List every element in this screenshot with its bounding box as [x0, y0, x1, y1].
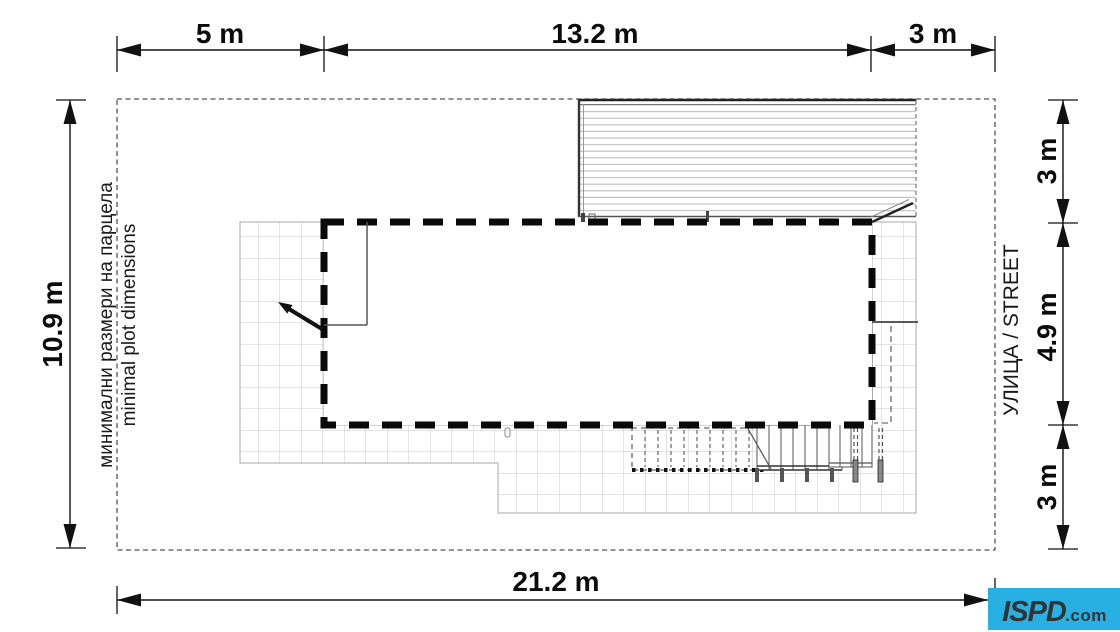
- dim-right-bottom-label: 3 m: [1032, 464, 1062, 511]
- plot-note-bg: минимални размери на парцела: [96, 182, 117, 468]
- logo-name: ISPD: [1002, 596, 1067, 628]
- dimension-right: 3 m 4.9 m 3 m: [1032, 100, 1078, 549]
- dim-bottom-label: 21.2 m: [512, 566, 599, 597]
- dimension-bottom: 21.2 m: [117, 566, 995, 614]
- plot-note: минимални размери на парцела minimal plo…: [96, 182, 140, 468]
- dim-left-label: 10.9 m: [37, 280, 68, 367]
- dim-right-top-label: 3 m: [1032, 138, 1062, 185]
- dimension-top: 5 m 13.2 m 3 m: [117, 18, 995, 72]
- dim-top-right-label: 3 m: [909, 18, 957, 49]
- dimension-left: 10.9 m: [37, 100, 86, 548]
- dim-top-left-label: 5 m: [196, 18, 244, 49]
- plot-note-en: minimal plot dimensions: [119, 224, 140, 427]
- building-footprint: [324, 222, 872, 425]
- dim-top-mid-label: 13.2 m: [551, 18, 638, 49]
- logo: ISPD .com: [988, 588, 1120, 630]
- door-mark-left: [581, 213, 585, 223]
- deck-hatch: [578, 104, 916, 215]
- site-plan-page: 5 m 13.2 m 3 m 10.9 m 3 m 4.9 m 3 m: [0, 0, 1120, 632]
- building-outline: [324, 222, 872, 437]
- deck-terrace: [578, 99, 916, 223]
- street-label: УЛИЦА / STREET: [1000, 244, 1023, 416]
- site-plan-drawing: 5 m 13.2 m 3 m 10.9 m 3 m 4.9 m 3 m: [0, 0, 1120, 632]
- logo-tld: .com: [1065, 606, 1107, 625]
- dim-right-mid-label: 4.9 m: [1032, 292, 1062, 361]
